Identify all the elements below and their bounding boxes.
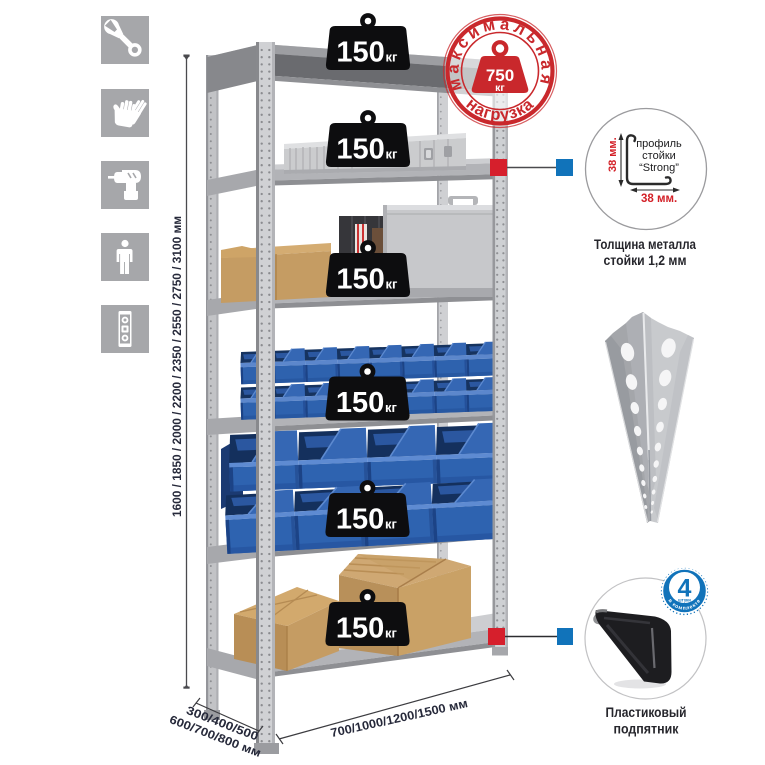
svg-text:1600 / 1850 / 2000 / 2200 / 23: 1600 / 1850 / 2000 / 2200 / 2350 / 2550 … (170, 216, 184, 517)
svg-text:150: 150 (336, 264, 384, 296)
svg-text:кг: кг (386, 50, 399, 65)
svg-text:кг: кг (495, 82, 505, 94)
svg-text:профиль: профиль (636, 138, 682, 150)
svg-text:кг: кг (385, 400, 398, 415)
svg-text:кг: кг (385, 626, 398, 641)
svg-text:Толщина металла: Толщина металла (594, 236, 696, 252)
svg-text:150: 150 (336, 613, 384, 645)
svg-text:кг: кг (385, 517, 398, 532)
svg-text:150: 150 (336, 504, 384, 536)
svg-text:кг: кг (386, 147, 399, 162)
svg-text:38 мм.: 38 мм. (607, 137, 619, 172)
svg-text:подпятник: подпятник (614, 721, 680, 737)
svg-text:Пластиковый: Пластиковый (606, 704, 687, 720)
svg-text:150: 150 (336, 134, 384, 166)
svg-text:38 мм.: 38 мм. (641, 193, 677, 205)
svg-text:кг: кг (386, 277, 399, 292)
svg-text:стойки 1,2 мм: стойки 1,2 мм (604, 252, 687, 268)
svg-text:“Strong”: “Strong” (639, 162, 679, 174)
svg-text:150: 150 (336, 37, 384, 69)
svg-text:150: 150 (336, 387, 384, 419)
svg-text:стойки: стойки (642, 150, 676, 162)
svg-text:штуки: штуки (678, 598, 691, 603)
